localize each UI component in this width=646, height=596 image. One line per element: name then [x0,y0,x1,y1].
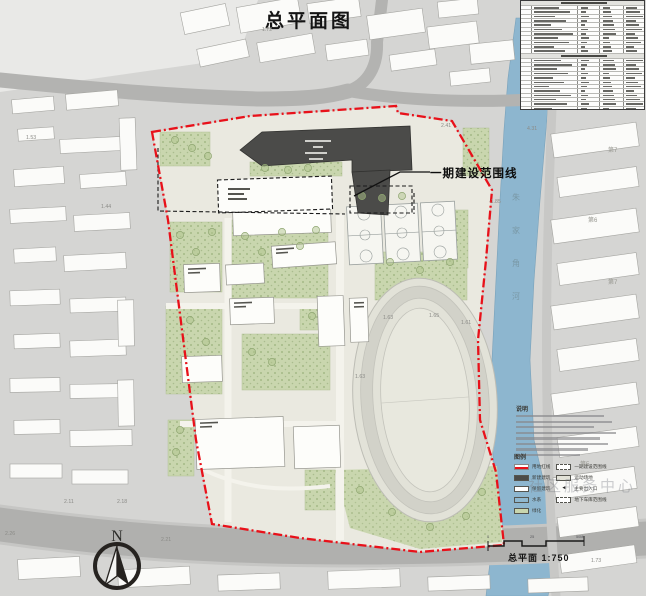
legend-item-water: 水系 [514,497,550,503]
scale-label: 总平面 1:750 [508,551,570,564]
context-building [10,207,67,224]
context-building [218,573,281,591]
context-building [449,68,490,86]
campus-building [230,297,275,325]
basement-line-swatch-icon [556,497,571,503]
tree-icon [192,248,199,255]
context-building [64,252,127,271]
tree-icon [204,152,211,159]
context-building [118,380,135,426]
context-building [10,464,62,478]
context-building [118,300,135,346]
water-swatch-icon [514,497,529,503]
tree-icon [176,426,183,433]
tree-icon [312,226,319,233]
tree-icon [478,488,485,495]
legend-label: 一期建设范围线 [574,464,606,470]
context-building [551,208,640,244]
context-building [557,339,639,372]
tree-icon [356,486,363,493]
phase1-boundary-label: 一期建设范围线 [430,165,518,181]
legend-label: 地下车库范围线 [574,497,606,503]
note-line [516,437,600,439]
legend-item-basement-line: 地下车库范围线 [556,497,606,503]
legend-label: 用地红线 [532,464,550,470]
context-building [10,289,60,306]
context-building [72,470,128,484]
basketball-court [421,201,458,261]
context-building [10,378,60,393]
context-building [325,39,369,61]
tree-icon [386,258,393,265]
new-building-swatch-icon [514,475,529,481]
context-building [80,171,127,188]
site-red-line-swatch-icon [514,464,529,470]
context-building [70,429,132,446]
tree-icon [304,164,311,171]
context-building [389,49,437,71]
note-line [516,448,588,450]
context-building [14,420,60,435]
campus-building [184,263,221,292]
tree-icon [278,228,285,235]
context-building [469,40,515,64]
tree-icon [308,312,315,319]
legend-item-phase1-line: 一期建设范围线 [556,464,606,470]
context-building [557,167,639,198]
basketball-court [384,203,421,263]
context-building [18,127,55,141]
context-building [551,294,640,330]
context-building [74,213,131,232]
note-line [516,443,608,445]
context-building [14,333,60,349]
note-line [516,426,594,428]
watermark-text: 社区服务中心 [528,475,636,496]
tree-icon [398,192,405,199]
tree-icon [186,316,193,323]
context-building [551,122,640,158]
context-building [14,247,57,263]
tree-icon [171,136,178,143]
campus-building [195,416,285,469]
context-building [119,118,137,171]
campus-building [293,425,340,469]
context-building [18,556,81,579]
green-hatch [242,334,330,390]
tree-icon [462,512,469,519]
context-building [437,0,478,18]
north-label: N [111,528,123,545]
legend-label: 水系 [532,497,541,503]
context-building [13,166,64,186]
tree-icon [261,164,268,171]
note-line [516,432,616,434]
tree-icon [248,348,255,355]
legend-label: 绿化 [532,508,541,514]
legend-item-greenery: 绿化 [514,508,550,514]
campus-building [317,296,345,347]
context-building [557,253,639,286]
note-line [516,415,604,417]
tree-icon [258,248,265,255]
campus-building [349,298,369,343]
phase1-line-swatch-icon [556,464,571,470]
master-plan-sheet: N 总平面图 [0,0,646,596]
legend-title: 图例 [514,452,644,461]
existing-building-swatch-icon [514,486,529,492]
context-building [528,577,588,593]
context-building [257,33,316,62]
greenery-swatch-icon [514,508,529,514]
tree-icon [202,338,209,345]
tree-icon [188,144,195,151]
table-row [521,107,644,110]
tree-icon [241,232,248,239]
green-hatch [305,470,335,510]
tree-icon [416,266,423,273]
context-building [70,339,127,357]
green-hatch [160,132,210,166]
campus-building [226,263,265,285]
context-building [328,569,401,590]
context-building [60,136,123,153]
notes-title: 说明 [516,404,628,413]
sheet-title: 总平面图 [265,6,353,33]
tree-icon [284,166,291,173]
tree-icon [172,448,179,455]
context-building [11,96,54,114]
tree-icon [268,358,275,365]
note-line [516,421,612,423]
context-building [428,575,490,591]
tree-icon [388,508,395,515]
legend-item-site-red-line: 用地红线 [514,464,550,470]
campus-building [271,242,336,268]
tree-icon [426,523,433,530]
tree-icon [176,231,183,238]
technical-indicator-table [520,0,645,110]
tree-icon [378,194,385,201]
tree-icon [208,228,215,235]
tree-icon [446,258,453,265]
tree-icon [296,242,303,249]
